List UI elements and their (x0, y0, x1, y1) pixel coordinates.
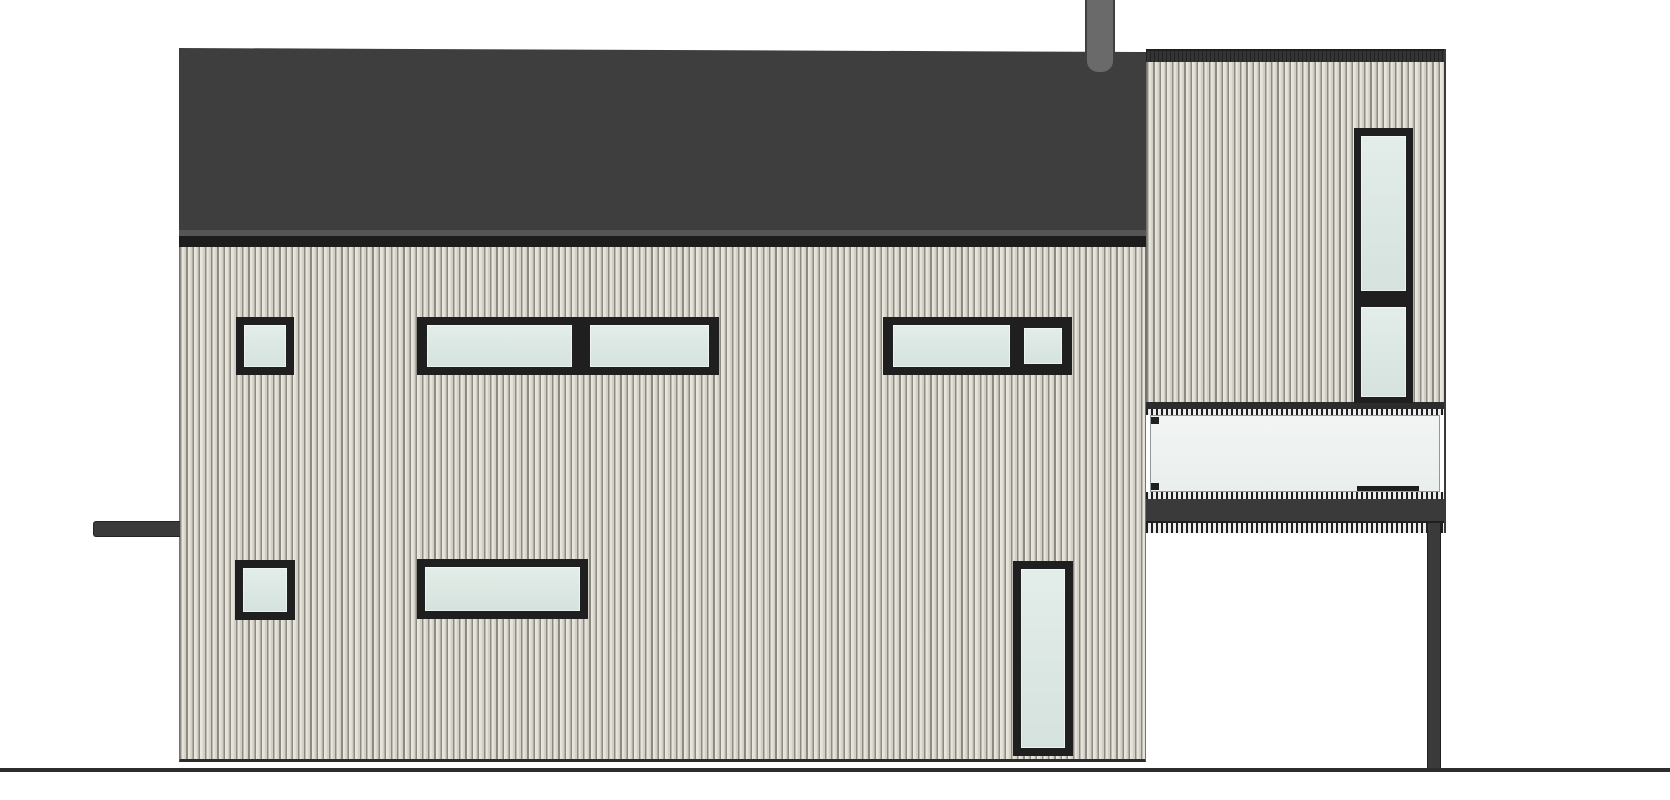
tower-roof-cap (1146, 49, 1446, 62)
entry-canopy-bar (93, 521, 180, 537)
window-glass (1361, 307, 1406, 397)
window-glass (1361, 136, 1406, 291)
balcony-floor-hatch (1146, 492, 1446, 499)
window-upper-middle-pair (417, 317, 719, 375)
balcony-edge-beam (1146, 499, 1446, 523)
window-glass (244, 325, 286, 367)
balcony-top-rail (1146, 402, 1446, 409)
window-lower-right-tall (1013, 561, 1073, 756)
handrail-shadow (1357, 486, 1419, 491)
window-glass (590, 325, 709, 367)
glass-bracket (1151, 417, 1159, 424)
glass-bracket (1151, 483, 1159, 490)
window-upper-right-pair (883, 317, 1072, 375)
window-lower-middle-wide (417, 559, 588, 619)
tower-right-outline (1444, 49, 1446, 533)
elevation-drawing (0, 0, 1670, 800)
window-glass (893, 325, 1010, 367)
window-glass (427, 325, 572, 367)
window-glass (425, 567, 580, 611)
balcony-glass-panel (1150, 415, 1440, 492)
chimney (1085, 0, 1115, 74)
window-glass (1021, 569, 1065, 748)
roof (179, 48, 1146, 230)
tower-window-stacked (1354, 128, 1413, 403)
window-upper-left-small (236, 317, 294, 375)
eave-fascia-gutter (179, 236, 1146, 247)
ground-line (0, 768, 1670, 772)
window-glass (243, 568, 287, 612)
support-post (1427, 523, 1441, 768)
window-glass (1024, 328, 1062, 364)
soffit-hatch (1146, 523, 1446, 533)
window-lower-left-small (235, 560, 295, 620)
